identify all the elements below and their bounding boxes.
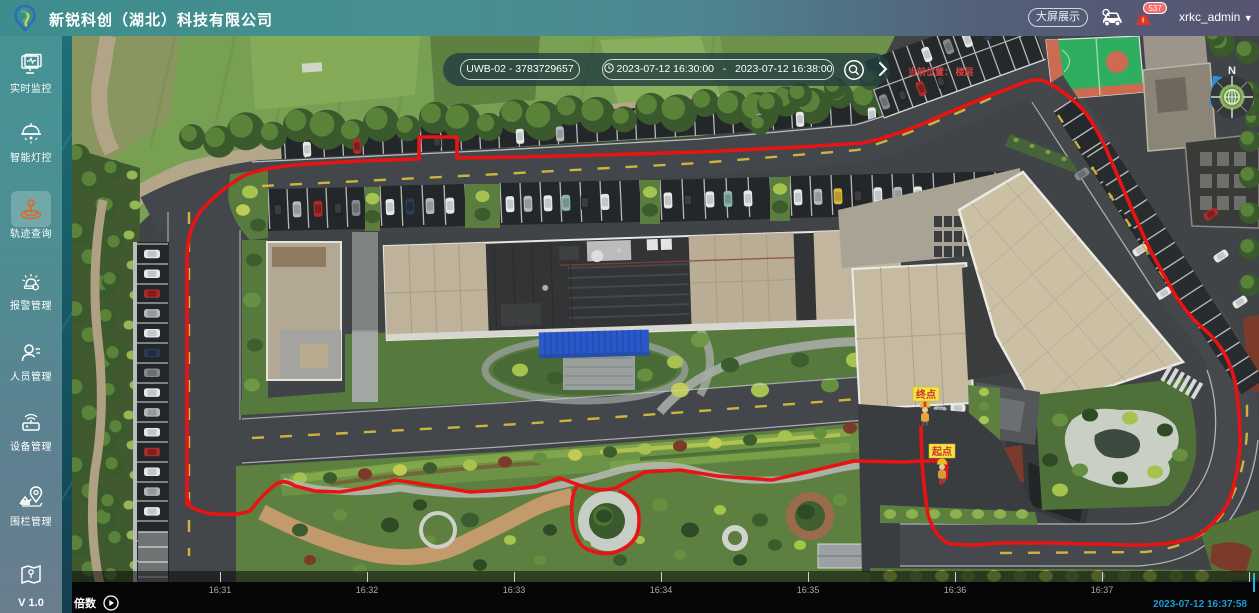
svg-text:起点: 起点 bbox=[931, 445, 952, 458]
svg-text:终点: 终点 bbox=[916, 388, 936, 401]
svg-text:N: N bbox=[1228, 65, 1236, 77]
svg-text:当前位置： 楼层: 当前位置： 楼层 bbox=[908, 66, 974, 77]
